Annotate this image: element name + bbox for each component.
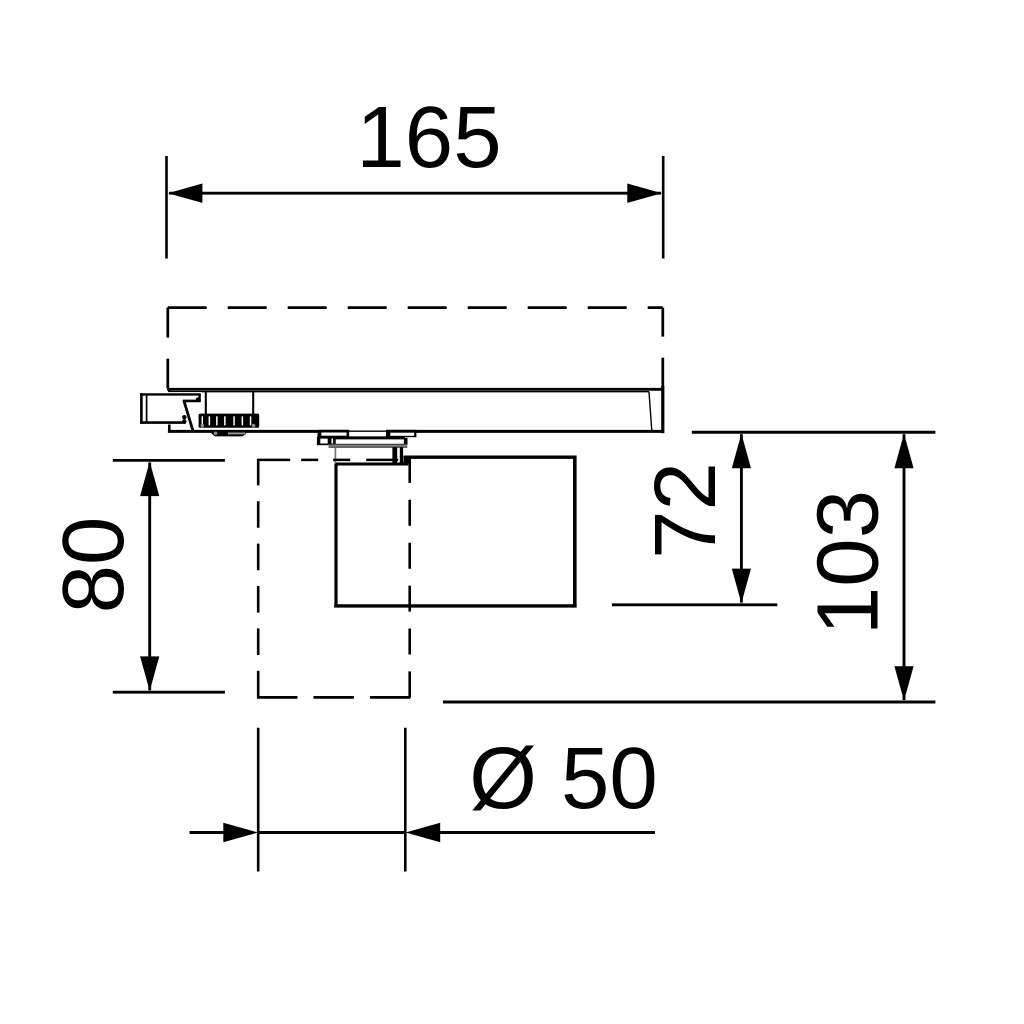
- svg-text:72: 72: [637, 462, 734, 559]
- svg-text:Ø 50: Ø 50: [469, 730, 658, 827]
- svg-text:165: 165: [356, 89, 501, 186]
- svg-text:103: 103: [800, 490, 897, 635]
- svg-text:80: 80: [45, 517, 142, 614]
